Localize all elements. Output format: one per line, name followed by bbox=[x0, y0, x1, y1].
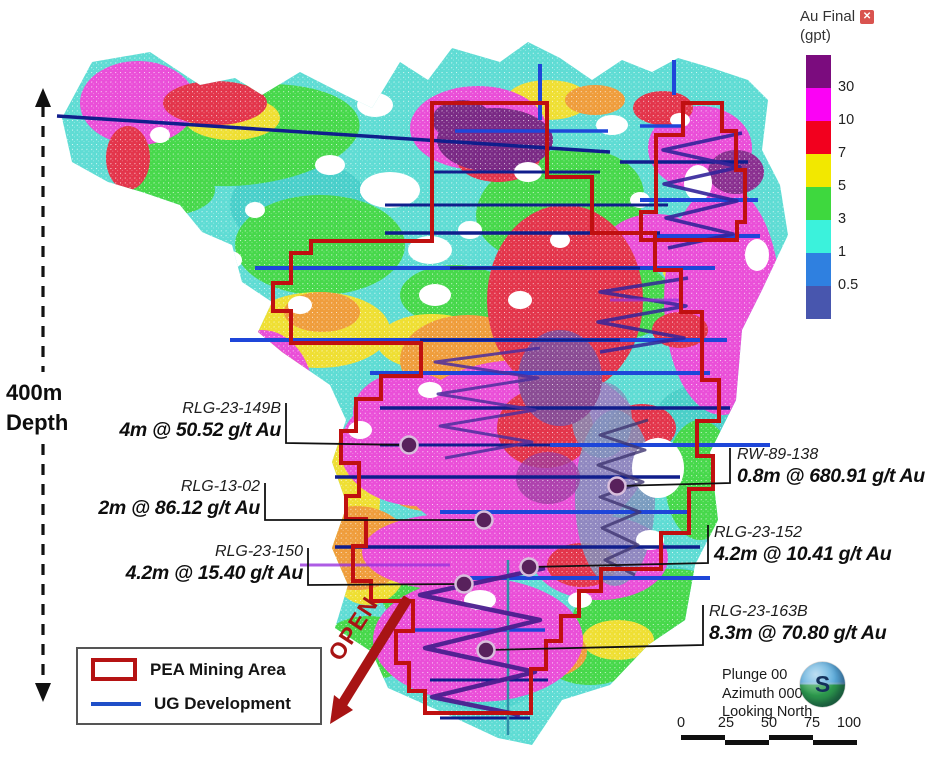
hole-id: RLG-23-163B bbox=[709, 602, 931, 621]
callout-rlg-23-149b: RLG-23-149B 4m @ 50.52 g/t Au bbox=[46, 399, 281, 442]
grade-colour-bar bbox=[806, 55, 831, 319]
grade-band bbox=[806, 253, 831, 286]
drillhole-marker-rlg-23-152[interactable] bbox=[521, 559, 538, 576]
scale-tick: 0 bbox=[677, 715, 685, 731]
pea-area-swatch bbox=[91, 658, 137, 681]
callout-rlg-23-163b: RLG-23-163B 8.3m @ 70.80 g/t Au bbox=[709, 602, 931, 645]
intercept-value: 4.2m @ 10.41 g/t Au bbox=[714, 542, 931, 566]
pea-area-label: PEA Mining Area bbox=[150, 660, 286, 680]
drillhole-marker-rw-89-138[interactable] bbox=[609, 478, 626, 495]
grade-tick-0-5: 0.5 bbox=[838, 277, 858, 293]
legend-row-ug: UG Development bbox=[91, 694, 307, 714]
scale-segment bbox=[725, 740, 769, 745]
callout-rlg-13-02: RLG-13-02 2m @ 86.12 g/t Au bbox=[25, 477, 260, 520]
scale-tick: 50 bbox=[761, 715, 777, 731]
map-legend: PEA Mining Area UG Development bbox=[76, 647, 322, 725]
drillhole-marker-rlg-23-150[interactable] bbox=[456, 576, 473, 593]
intercept-value: 2m @ 86.12 g/t Au bbox=[25, 496, 260, 520]
drillhole-marker-rlg-23-149b[interactable] bbox=[401, 437, 418, 454]
grade-legend-units: (gpt) bbox=[800, 27, 930, 44]
grade-tick-30: 30 bbox=[838, 79, 854, 95]
intercept-value: 4m @ 50.52 g/t Au bbox=[46, 418, 281, 442]
callout-rlg-23-152: RLG-23-152 4.2m @ 10.41 g/t Au bbox=[714, 523, 931, 566]
scale-segment bbox=[813, 740, 857, 745]
azimuth-value: Azimuth 000 bbox=[722, 685, 812, 704]
grade-band bbox=[806, 286, 831, 319]
callout-rlg-23-150: RLG-23-150 4.2m @ 15.40 g/t Au bbox=[68, 542, 303, 585]
grade-tick-7: 7 bbox=[838, 145, 846, 161]
hole-id: RLG-13-02 bbox=[25, 477, 260, 496]
hole-id: RLG-23-149B bbox=[46, 399, 281, 418]
intercept-value: 0.8m @ 680.91 g/t Au bbox=[737, 464, 931, 488]
legend-row-pea: PEA Mining Area bbox=[91, 658, 307, 681]
grade-band bbox=[806, 187, 831, 220]
globe-letter: S bbox=[815, 671, 830, 698]
close-icon[interactable]: ✕ bbox=[860, 10, 874, 24]
intercept-value: 8.3m @ 70.80 g/t Au bbox=[709, 621, 931, 645]
view-orientation-info: Plunge 00 Azimuth 000 Looking North bbox=[722, 666, 812, 722]
grade-band bbox=[806, 154, 831, 187]
grade-tick-10: 10 bbox=[838, 112, 854, 128]
hole-id: RW-89-138 bbox=[737, 445, 931, 464]
ug-development-swatch bbox=[91, 702, 141, 706]
drillhole-marker-rlg-23-163b[interactable] bbox=[478, 642, 495, 659]
intercept-value: 4.2m @ 15.40 g/t Au bbox=[68, 561, 303, 585]
plunge-value: Plunge 00 bbox=[722, 666, 812, 685]
grade-band bbox=[806, 121, 831, 154]
scale-segment bbox=[769, 735, 813, 740]
grade-band bbox=[806, 55, 831, 88]
long-section-view: 400m Depth RLG-23-149B 4m @ 50.52 g/t Au… bbox=[0, 0, 931, 758]
grade-band bbox=[806, 220, 831, 253]
grade-tick-1: 1 bbox=[838, 244, 846, 260]
hole-id: RLG-23-150 bbox=[68, 542, 303, 561]
scene-rotation-globe-icon[interactable]: S bbox=[800, 662, 845, 707]
grade-tick-3: 3 bbox=[838, 211, 846, 227]
hole-id: RLG-23-152 bbox=[714, 523, 931, 542]
grade-legend: Au Final ✕ (gpt) 30 10 7 5 3 1 0.5 bbox=[800, 8, 930, 44]
scale-segment bbox=[681, 735, 725, 740]
scale-tick: 75 bbox=[804, 715, 820, 731]
scale-tick: 25 bbox=[718, 715, 734, 731]
scale-tick: 100 bbox=[837, 715, 861, 731]
grade-band bbox=[806, 88, 831, 121]
callout-rw-89-138: RW-89-138 0.8m @ 680.91 g/t Au bbox=[737, 445, 931, 488]
ug-development-label: UG Development bbox=[154, 694, 291, 714]
grade-tick-5: 5 bbox=[838, 178, 846, 194]
grade-legend-title: Au Final bbox=[800, 8, 855, 25]
drillhole-marker-rlg-13-02[interactable] bbox=[476, 512, 493, 529]
